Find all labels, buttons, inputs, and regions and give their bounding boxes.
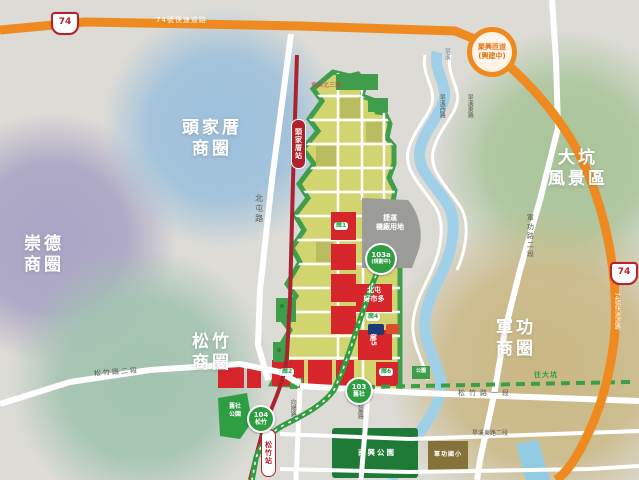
station-104: 104 松竹 — [247, 405, 275, 433]
expressway-top-label: 74號快速道路 — [156, 16, 207, 24]
road-label-beitun: 北屯路 — [254, 194, 264, 224]
expressway-shield-icon: 74 — [610, 262, 638, 285]
nanxing-park-label: 南興公園 — [342, 448, 412, 457]
building-tag-icon — [386, 324, 399, 334]
map-canvas: 74 74 74號快速道路 74號快速道路 聚興匝道 (興建中) 頭家厝 商圈 … — [0, 0, 639, 480]
station-toujiacuo: 頭家厝站 — [291, 119, 306, 169]
road-label-hanxi-east: 旱溪東路 — [466, 94, 473, 118]
region-dakeng: 大坑 風景區 — [548, 148, 608, 191]
expressway-side-label: 74號快速道路 — [613, 292, 620, 330]
parcel-tag: 廍5 — [369, 334, 377, 346]
road-label-hanxi-east2: 旱溪東路二段 — [472, 430, 508, 437]
road-label-hanxi-west: 旱溪西路 — [438, 94, 445, 118]
road-label-xiangyang: 向陽路 — [289, 399, 296, 417]
school-label: 軍功國小 — [429, 451, 467, 459]
river-name: 旱溪 — [443, 48, 450, 60]
expressway-shield-icon: 74 — [51, 12, 79, 35]
station-103a: 103a (規劃中) — [365, 243, 397, 275]
interchange-status: (興建中) — [472, 52, 512, 61]
park-label: 公園 — [288, 379, 304, 385]
costco-label: 北屯 好市多 — [355, 286, 393, 304]
region-chongde: 崇德 商圈 — [24, 234, 64, 277]
parcel-tag: 廍6 — [379, 368, 393, 376]
road-label-north3: 東興北三路 — [311, 82, 341, 89]
road-label-songzhu1: 松竹路一段 — [458, 389, 513, 397]
interchange-name: 聚興匝道 — [472, 43, 512, 52]
parcel-tag: 廍2 — [280, 368, 294, 376]
region-songzhu: 松竹 商圈 — [192, 332, 232, 375]
parcel-tag: 廍1 — [334, 222, 348, 230]
region-jungong: 軍功 商圈 — [496, 318, 536, 361]
road-label-jungong2: 軍功路二段 — [526, 214, 534, 259]
to-dakeng-label: 往大坑 — [534, 371, 558, 379]
interchange-marker: 聚興匝道 (興建中) — [467, 27, 517, 77]
station-songzhu-tag: 松竹站 — [261, 429, 276, 477]
region-toujiacuo: 頭家厝 商圈 — [182, 118, 242, 161]
park-label: 公園 — [412, 368, 430, 374]
jiushe-park-label: 舊社 公園 — [221, 403, 249, 418]
parcel-tag: 廍4 — [366, 313, 380, 321]
map-layers — [0, 0, 639, 480]
mrt-depot-label: 捷運 機廠用地 — [366, 214, 414, 232]
station-103: 103 舊社 — [345, 377, 373, 405]
